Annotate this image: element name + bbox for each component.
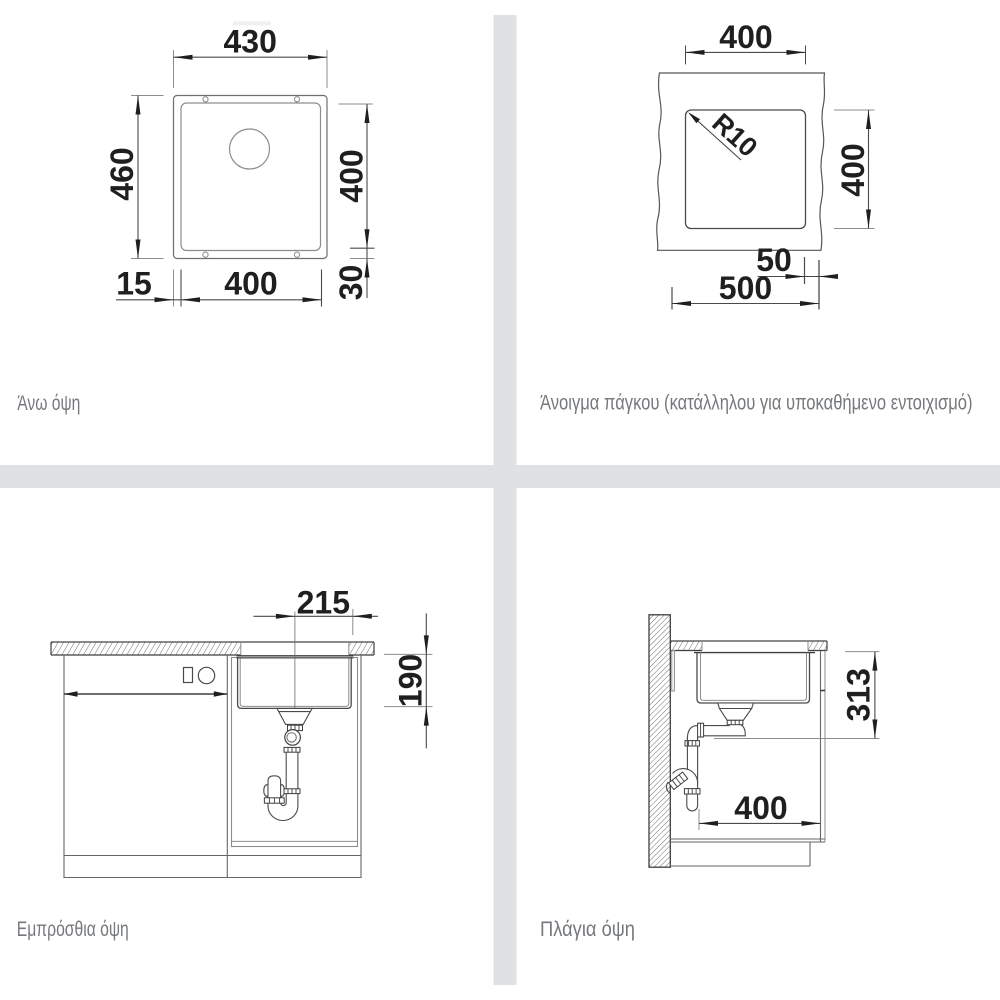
svg-text:430: 430: [224, 23, 277, 59]
svg-text:400: 400: [333, 149, 369, 202]
svg-text:Πλάγια όψη: Πλάγια όψη: [540, 917, 635, 941]
svg-text:Εμπρόσθια όψη: Εμπρόσθια όψη: [17, 917, 129, 941]
svg-text:500: 500: [719, 270, 772, 306]
svg-text:400: 400: [719, 19, 772, 55]
svg-text:190: 190: [393, 654, 429, 707]
svg-text:215: 215: [297, 584, 350, 620]
svg-text:400: 400: [734, 790, 787, 826]
svg-text:Άνοιγμα πάγκου (κατάλληλου για: Άνοιγμα πάγκου (κατάλληλου για υποκαθήμε…: [540, 391, 973, 415]
svg-text:30: 30: [333, 265, 369, 301]
svg-text:400: 400: [224, 266, 277, 302]
svg-text:460: 460: [104, 147, 140, 200]
svg-text:15: 15: [116, 266, 152, 302]
svg-text:Άνω όψη: Άνω όψη: [17, 391, 80, 415]
svg-text:400: 400: [835, 143, 871, 196]
svg-text:313: 313: [841, 668, 877, 721]
